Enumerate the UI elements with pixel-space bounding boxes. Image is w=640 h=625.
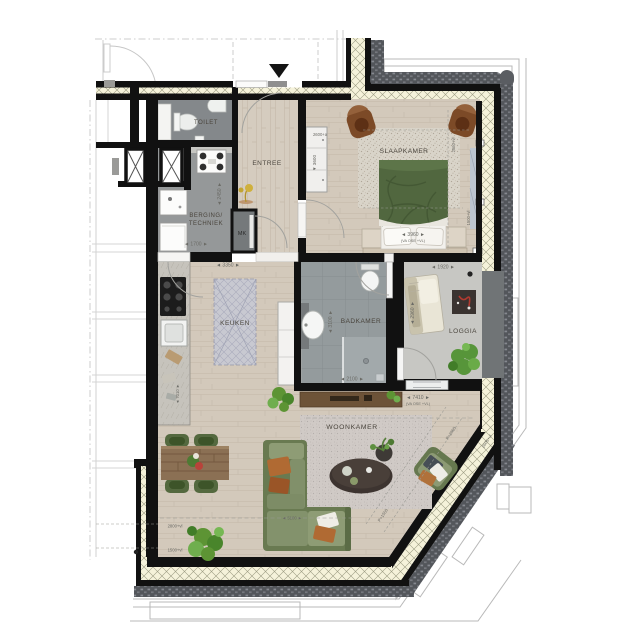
svg-text:◄ 7010 ►: ◄ 7010 ►	[175, 384, 180, 404]
svg-text:◄ 1920 ►: ◄ 1920 ►	[431, 265, 455, 271]
svg-text:ENTREE: ENTREE	[252, 160, 282, 167]
svg-text:BERGING/: BERGING/	[189, 213, 222, 219]
svg-text:2600+a: 2600+a	[313, 132, 328, 137]
svg-text:◄ 5100 ►: ◄ 5100 ►	[282, 516, 302, 521]
svg-text:◄ 3960 ►: ◄ 3960 ►	[401, 232, 425, 238]
svg-text:◄ 2450 ►: ◄ 2450 ►	[217, 182, 223, 206]
svg-text:◄ 3350 ►: ◄ 3350 ►	[216, 263, 240, 269]
svg-text:TOILET: TOILET	[194, 120, 218, 126]
svg-text:◄ 1700 ►: ◄ 1700 ►	[184, 242, 208, 248]
svg-text:KEUKEN: KEUKEN	[220, 320, 250, 327]
svg-text:◄ 7410 ►: ◄ 7410 ►	[406, 395, 430, 401]
svg-text:▼ 3600: ▼ 3600	[312, 155, 317, 171]
svg-text:BADKAMER: BADKAMER	[341, 318, 381, 325]
svg-text:SLAAPKAMER: SLAAPKAMER	[380, 148, 429, 155]
svg-text:(VA OSE +VL): (VA OSE +VL)	[401, 239, 426, 243]
svg-text:WOONKAMER: WOONKAMER	[326, 424, 377, 431]
svg-text:◄ 2960 ►: ◄ 2960 ►	[410, 301, 416, 325]
svg-text:TECHNIEK: TECHNIEK	[189, 221, 223, 227]
svg-text:◄ 2100 ►: ◄ 2100 ►	[340, 377, 364, 383]
svg-text:MK: MK	[238, 231, 247, 237]
svg-text:LOGGIA: LOGGIA	[449, 328, 477, 335]
svg-text:1500+vl: 1500+vl	[466, 211, 471, 226]
svg-text:◄ 3100 ►: ◄ 3100 ►	[328, 310, 334, 334]
svg-text:2560+vl: 2560+vl	[451, 138, 456, 153]
svg-text:(VA OSE +VL): (VA OSE +VL)	[406, 402, 431, 406]
svg-text:2800+vl: 2800+vl	[168, 524, 183, 529]
svg-text:1500+vl: 1500+vl	[168, 548, 183, 553]
